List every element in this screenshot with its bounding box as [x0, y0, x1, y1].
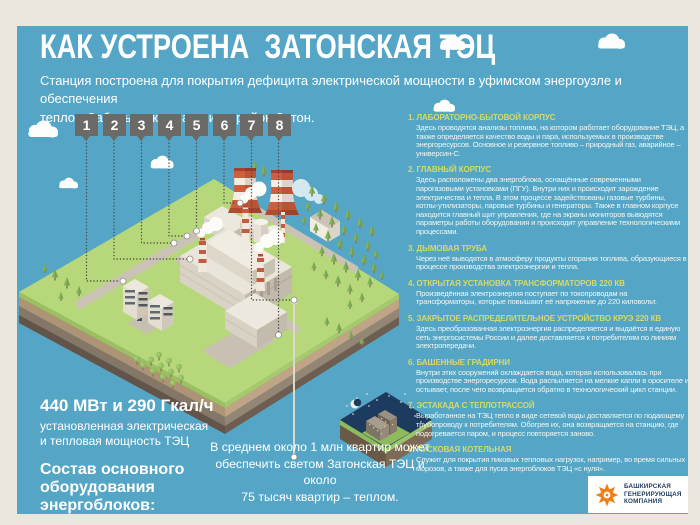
installed-capacity: 440 МВт и 290 Гкал/ч	[40, 396, 248, 416]
legend-item-body: Через неё выводятся в атмосферу продукты…	[408, 255, 688, 272]
marker-7: 7	[240, 114, 263, 136]
marker-2: 2	[103, 114, 126, 136]
company-logo: БАШКИРСКАЯ ГЕНЕРИРУЮЩАЯ КОМПАНИЯ	[588, 476, 688, 513]
legend-item-title: 4.ОТКРЫТАЯ УСТАНОВКА ТРАНСФОРМАТОРОВ 220…	[408, 279, 688, 289]
legend-item-2: 2.ГЛАВНЫЙ КОРПУС Здесь расположены два э…	[408, 165, 688, 236]
legend-item-6: 6.БАШЕННЫЕ ГРАДИРНИ Внутри этих сооружен…	[408, 358, 688, 395]
marker-4: 4	[158, 114, 181, 136]
apartments-note: В среднем около 1 млн квартир может обес…	[210, 439, 430, 505]
legend-item-body: Здесь расположены два энергоблока, оснащ…	[408, 176, 688, 236]
legend-item-title: 8.ПУСКОВАЯ КОТЕЛЬНАЯ	[408, 445, 688, 455]
legend-item-body: Здесь преобразованная электроэнергия рас…	[408, 325, 688, 351]
marker-5: 5	[185, 114, 208, 136]
legend-item-title: 3.ДЫМОВАЯ ТРУБА	[408, 244, 688, 254]
legend-list: 1.ЛАБОРАТОРНО-БЫТОВОЙ КОРПУС Здесь прово…	[408, 113, 688, 480]
legend-item-title: 5.ЗАКРЫТОЕ РАСПРЕДЕЛИТЕЛЬНОЕ УСТРОЙСТВО …	[408, 314, 688, 324]
steam	[292, 179, 324, 204]
legend-item-3: 3.ДЫМОВАЯ ТРУБА Через неё выводятся в ат…	[408, 244, 688, 272]
marker-3: 3	[130, 114, 153, 136]
legend-item-title: 1.ЛАБОРАТОРНО-БЫТОВОЙ КОРПУС	[408, 113, 688, 123]
legend-item-body: Произведённая электроэнергия поступает п…	[408, 290, 688, 307]
marker-1: 1	[75, 114, 98, 136]
legend-item-body: Служит для покрытия пиковых тепловых наг…	[408, 456, 688, 473]
marker-6: 6	[213, 114, 236, 136]
legend-item-4: 4.ОТКРЫТАЯ УСТАНОВКА ТРАНСФОРМАТОРОВ 220…	[408, 279, 688, 307]
legend-item-1: 1.ЛАБОРАТОРНО-БЫТОВОЙ КОРПУС Здесь прово…	[408, 113, 688, 158]
marker-8: 8	[268, 114, 291, 136]
infographic-page: КАК УСТРОЕНА ЗАТОНСКАЯ ТЭЦ Станция постр…	[0, 0, 700, 525]
legend-item-title: 2.ГЛАВНЫЙ КОРПУС	[408, 165, 688, 175]
sun-logo-icon	[595, 483, 619, 507]
legend-item-body: Внутри этих сооружений охлаждается вода,…	[408, 369, 688, 395]
aux-building	[310, 210, 340, 242]
legend-item-body: Здесь проводятся анализы топлива, на кот…	[408, 124, 688, 158]
legend-item-title: 7.ЭСТАКАДА С ТЕПЛОТРАССОЙ	[408, 401, 688, 411]
legend-item-7: 7.ЭСТАКАДА С ТЕПЛОТРАССОЙ Выработанное н…	[408, 401, 688, 438]
legend-item-5: 5.ЗАКРЫТОЕ РАСПРЕДЕЛИТЕЛЬНОЕ УСТРОЙСТВО …	[408, 314, 688, 351]
poster-canvas: КАК УСТРОЕНА ЗАТОНСКАЯ ТЭЦ Станция постр…	[17, 26, 688, 514]
legend-item-body: Выработанное на ТЭЦ тепло в виде сетевой…	[408, 412, 688, 438]
legend-item-8: 8.ПУСКОВАЯ КОТЕЛЬНАЯ Служит для покрытия…	[408, 445, 688, 473]
company-name: БАШКИРСКАЯ ГЕНЕРИРУЮЩАЯ КОМПАНИЯ	[624, 483, 682, 506]
legend-item-title: 6.БАШЕННЫЕ ГРАДИРНИ	[408, 358, 688, 368]
page-title: КАК УСТРОЕНА ЗАТОНСКАЯ ТЭЦ	[40, 28, 495, 67]
